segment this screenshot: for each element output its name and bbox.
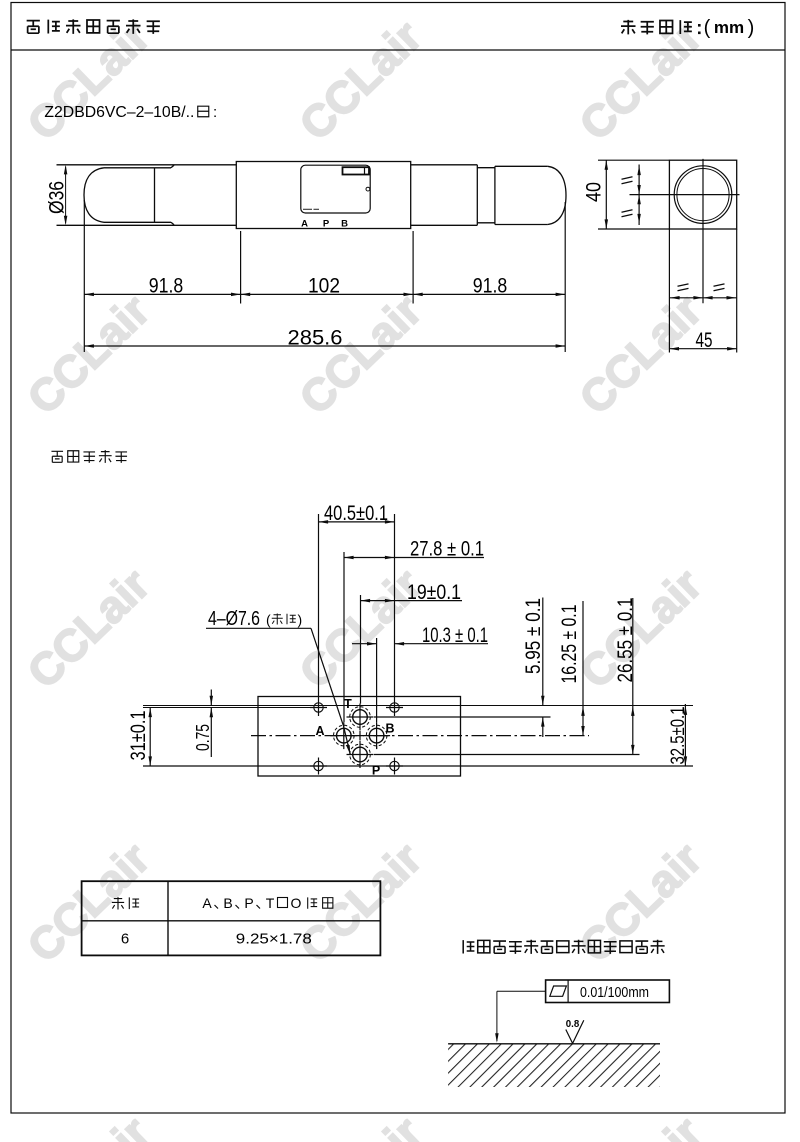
svg-text:91.8: 91.8 (149, 275, 184, 298)
svg-text:26.55 ± 0.1: 26.55 ± 0.1 (614, 598, 637, 683)
svg-text:4–Ø7.6: 4–Ø7.6 (208, 608, 260, 630)
svg-text:T: T (266, 895, 275, 911)
svg-text::: : (213, 104, 217, 121)
svg-text:0.01/100mm: 0.01/100mm (580, 985, 649, 1001)
svg-text:16.25 ± 0.1: 16.25 ± 0.1 (558, 605, 581, 684)
svg-text:45: 45 (696, 329, 713, 352)
svg-text:T: T (344, 697, 352, 711)
svg-text:P: P (323, 219, 330, 230)
svg-text:285.6: 285.6 (288, 326, 343, 349)
svg-text:A: A (301, 219, 308, 230)
svg-text:A: A (315, 724, 324, 738)
svg-text:(: ( (266, 612, 271, 628)
svg-text:40.5±0.1: 40.5±0.1 (324, 502, 388, 525)
svg-text:): ) (748, 17, 755, 39)
svg-text:P: P (372, 764, 380, 778)
svg-text:Ø36: Ø36 (46, 181, 69, 214)
svg-text:10.3 ± 0.1: 10.3 ± 0.1 (422, 624, 488, 647)
svg-text:(: ( (704, 17, 711, 39)
svg-text:): ) (298, 612, 303, 628)
svg-text:31±0.1: 31±0.1 (127, 711, 150, 761)
svg-text:P: P (244, 895, 253, 911)
svg-text:27.8 ± 0.1: 27.8 ± 0.1 (410, 538, 484, 561)
svg-text:32.5±0.1: 32.5±0.1 (668, 707, 689, 765)
svg-text:Z2DBD6VC–2–10B/..: Z2DBD6VC–2–10B/.. (44, 104, 194, 121)
svg-text:9.25×1.78: 9.25×1.78 (236, 931, 312, 948)
svg-text:0.8: 0.8 (566, 1018, 580, 1030)
svg-text:B: B (223, 895, 232, 911)
svg-text:102: 102 (308, 275, 340, 298)
svg-text:40: 40 (583, 182, 606, 202)
svg-text:O: O (291, 895, 302, 911)
svg-text:5.95 ± 0.1: 5.95 ± 0.1 (522, 598, 545, 674)
svg-text:0.75: 0.75 (193, 724, 213, 751)
svg-text:mm: mm (714, 18, 744, 37)
svg-text:6: 6 (121, 931, 129, 948)
svg-text:91.8: 91.8 (473, 275, 508, 298)
svg-text:19±0.1: 19±0.1 (407, 581, 461, 604)
svg-text:A: A (202, 895, 212, 911)
svg-text:B: B (341, 219, 348, 230)
svg-text:B: B (385, 722, 394, 736)
